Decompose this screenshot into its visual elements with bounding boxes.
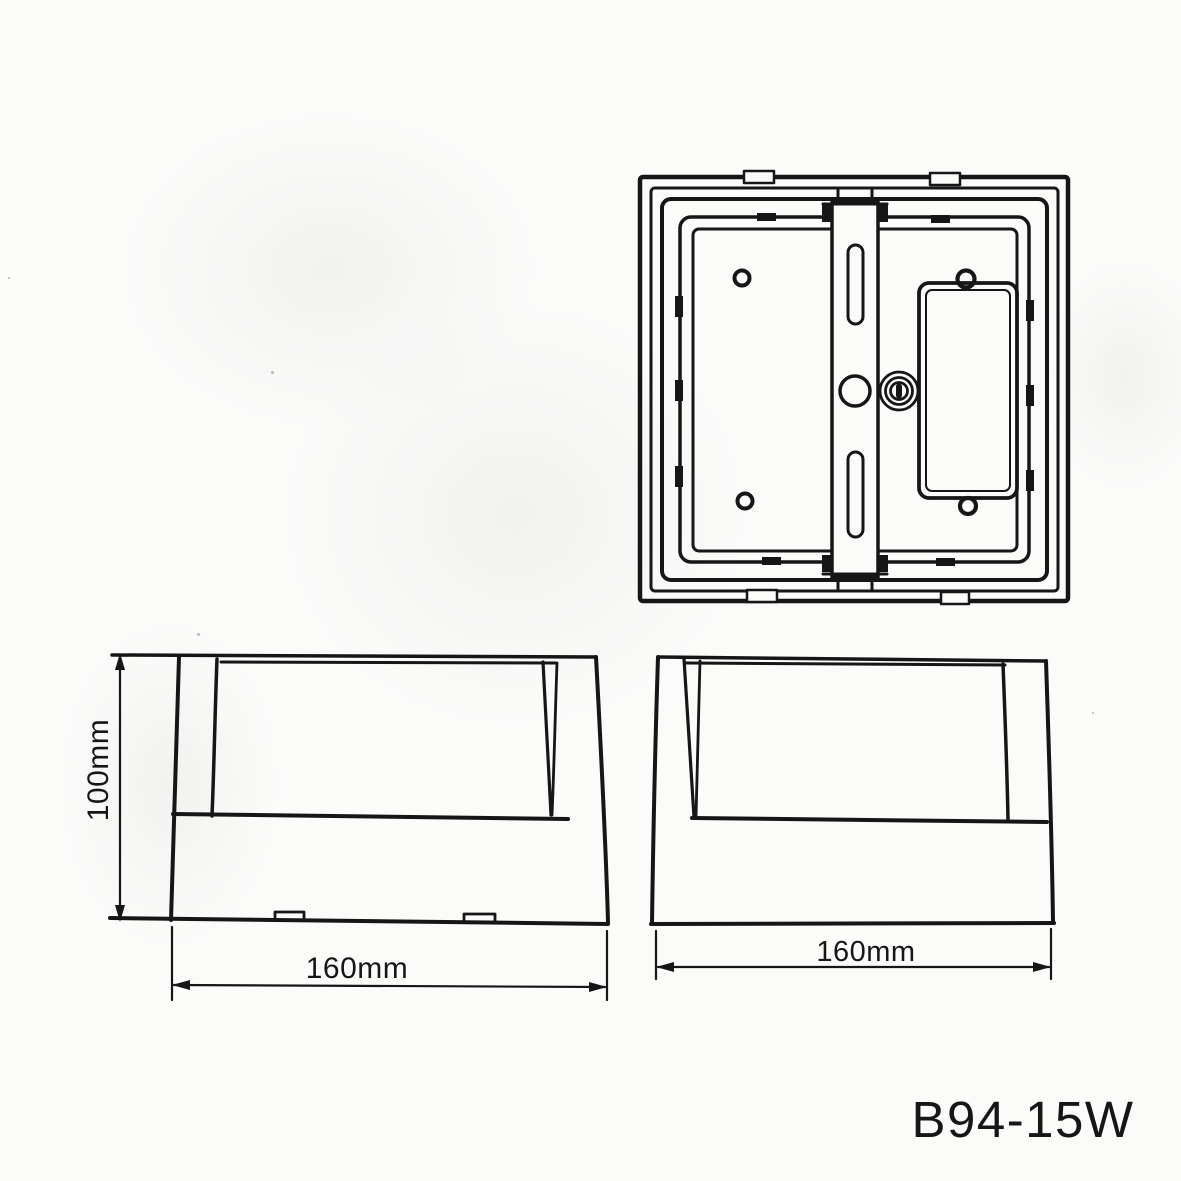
- width-dimension-label-right: 160mm: [816, 936, 915, 968]
- frame-notch: [930, 173, 960, 185]
- body-bottom-edge: [110, 918, 608, 924]
- frame-notch: [744, 171, 774, 183]
- body-left-edge: [652, 657, 658, 923]
- cable-gland-knockout: [880, 372, 918, 410]
- mounting-hole: [735, 271, 750, 286]
- window-bottom: [173, 814, 568, 819]
- window-wedge: [552, 663, 557, 815]
- mounting-bracket: [822, 190, 888, 590]
- body-left-edge: [171, 657, 179, 920]
- technical-drawing-canvas: 100mm 160mm 160mm B94-15W: [0, 0, 1181, 1181]
- body-right-edge: [596, 657, 608, 922]
- window-wedge: [696, 661, 700, 817]
- driver-box: [919, 271, 1017, 515]
- strip-line: [212, 659, 217, 816]
- body-top-edge: [658, 657, 1046, 661]
- window-wedge: [684, 659, 694, 817]
- product-code-label: B94-15W: [911, 1091, 1134, 1148]
- window-wedge: [543, 662, 551, 815]
- body-right-edge: [1046, 661, 1053, 922]
- body-top-edge: [112, 655, 596, 657]
- bottom-tab: [275, 912, 304, 919]
- frame-notch: [747, 590, 777, 602]
- window-bottom: [692, 818, 1047, 822]
- dimension-height: [115, 653, 125, 922]
- mounting-hole: [738, 494, 753, 509]
- bottom-tab: [464, 914, 495, 921]
- body-bottom-edge: [651, 923, 1054, 924]
- driver-screw-hole: [960, 498, 976, 514]
- window-top-edge: [686, 663, 1005, 665]
- side-view-right: [651, 657, 1054, 979]
- window-top-edge: [221, 662, 556, 663]
- side-view-left: [110, 653, 608, 1000]
- driver-screw-hole: [958, 271, 975, 288]
- frame-notch: [941, 592, 969, 604]
- height-dimension-label: 100mm: [82, 719, 115, 822]
- top-view: [640, 171, 1068, 604]
- fixture-technical-drawing: 100mm 160mm 160mm B94-15W: [0, 0, 1181, 1181]
- width-dimension-label-left: 160mm: [306, 952, 409, 985]
- strip-line: [1003, 664, 1008, 819]
